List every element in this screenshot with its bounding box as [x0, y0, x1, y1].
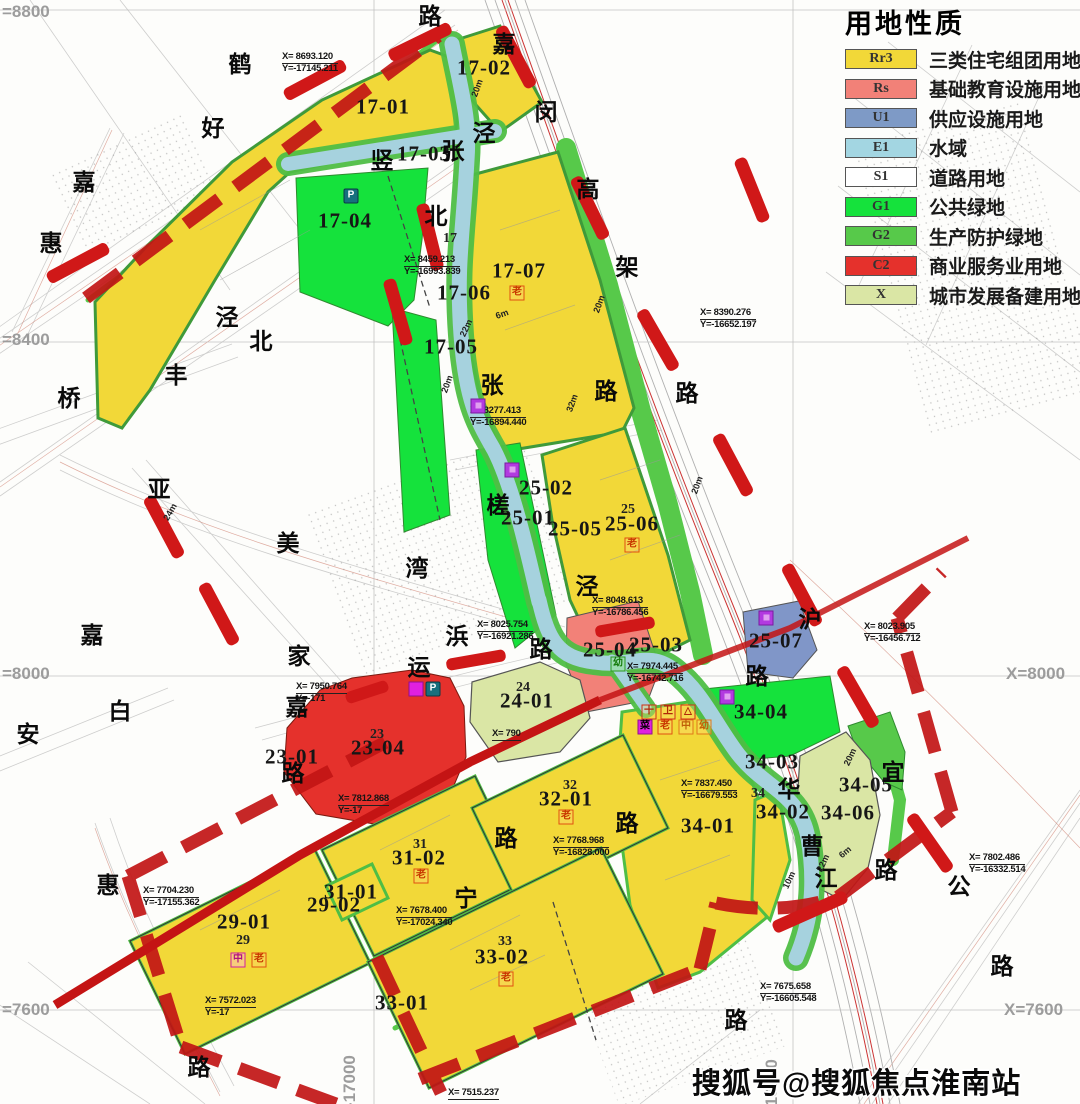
legend-row-G1: G1公共绿地	[845, 197, 1080, 217]
legend-row-Rs: Rs基础教育设施用地	[845, 79, 1080, 99]
legend-swatch-Rr3: Rr3	[845, 49, 917, 69]
legend-swatch-G1: G1	[845, 197, 917, 217]
planning-map: 17-0117-0217-0317-0417-0517-0617-0725-02…	[0, 0, 1080, 1104]
legend-swatch-S1: S1	[845, 167, 917, 187]
legend-row-X: X城市发展备建用地	[845, 285, 1080, 305]
legend-swatch-E1: E1	[845, 138, 917, 158]
legend: 用地性质 Rr3三类住宅组团用地Rs基础教育设施用地U1供应设施用地E1水域S1…	[845, 2, 1080, 315]
legend-label: 供应设施用地	[929, 105, 1043, 132]
legend-row-G2: G2生产防护绿地	[845, 226, 1080, 246]
legend-row-C2: C2商业服务业用地	[845, 256, 1080, 276]
legend-row-Rr3: Rr3三类住宅组团用地	[845, 49, 1080, 69]
legend-label: 水域	[929, 134, 967, 161]
watermark: 搜狐号@搜狐焦点淮南站	[692, 1060, 1021, 1102]
legend-label: 三类住宅组团用地	[929, 46, 1080, 73]
legend-label: 商业服务业用地	[929, 252, 1062, 279]
legend-label: 基础教育设施用地	[929, 75, 1080, 102]
legend-label: 道路用地	[929, 164, 1005, 191]
legend-swatch-Rs: Rs	[845, 79, 917, 99]
legend-title: 用地性质	[845, 2, 1080, 41]
legend-row-E1: E1水域	[845, 138, 1080, 158]
legend-swatch-C2: C2	[845, 256, 917, 276]
legend-row-U1: U1供应设施用地	[845, 108, 1080, 128]
legend-swatch-X: X	[845, 285, 917, 305]
legend-swatch-G2: G2	[845, 226, 917, 246]
legend-label: 公共绿地	[929, 193, 1005, 220]
legend-row-S1: S1道路用地	[845, 167, 1080, 187]
legend-swatch-U1: U1	[845, 108, 917, 128]
legend-label: 城市发展备建用地	[929, 282, 1080, 309]
legend-label: 生产防护绿地	[929, 223, 1043, 250]
legend-rows: Rr3三类住宅组团用地Rs基础教育设施用地U1供应设施用地E1水域S1道路用地G…	[845, 49, 1080, 305]
